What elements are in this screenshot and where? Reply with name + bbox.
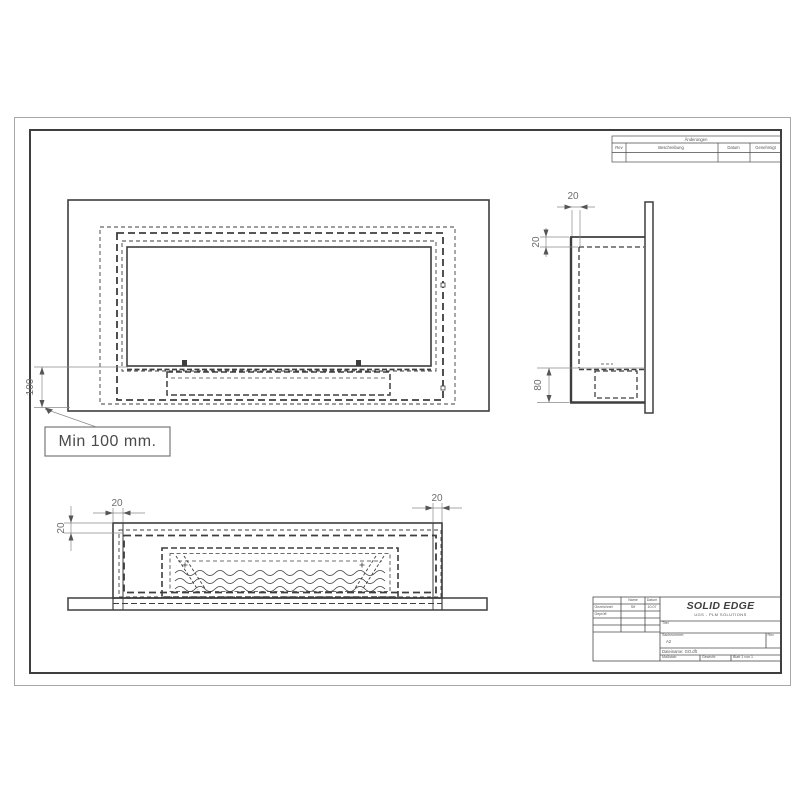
side-view-dim-left-20: 20: [532, 236, 542, 247]
titleblock-name-header: Name: [628, 599, 638, 603]
solid-edge-logo-subtitle: UGS - PLM SOLUTIONS: [694, 613, 746, 617]
solid-edge-logo: SOLID EDGE: [687, 601, 755, 612]
front-view-dimension-lines: [34, 367, 128, 429]
titleblock-filename: Dateiname: GO.dft: [662, 649, 697, 653]
bottom-view-dim-right-20: 20: [431, 494, 442, 504]
side-view-dim-80: 80: [534, 379, 544, 390]
bottom-view-dim-side-20: 20: [57, 522, 67, 533]
min-clearance-callout-text: Min 100 mm.: [59, 434, 157, 450]
revision-col-date: Datum: [727, 146, 739, 150]
side-view-dim-top-20: 20: [567, 192, 578, 202]
bottom-view-dim-left-20: 20: [111, 499, 122, 509]
revision-table-title: Änderungen: [685, 137, 708, 141]
revision-col-rev: Rev: [615, 146, 622, 150]
titleblock-sheet-size: A2: [666, 640, 671, 644]
titleblock-rev-label: Rev: [768, 634, 774, 638]
bottom-view: [64, 503, 487, 610]
cad-drawing-sheet: Änderungen Rev Beschreibung Datum Genehm…: [0, 0, 800, 800]
side-view: [537, 202, 653, 413]
front-view-dim-100: 100: [26, 379, 36, 396]
front-view: [34, 200, 489, 456]
titleblock-docnumber-label: Sachnummer:: [662, 634, 684, 638]
titleblock-drawn-name: Stf: [631, 606, 635, 610]
titleblock-title-label: Titel: [662, 622, 669, 626]
titleblock-checked-label: Geprüft: [595, 613, 607, 617]
revision-col-description: Beschreibung: [658, 146, 684, 150]
front-view-clips: [182, 360, 361, 366]
titleblock-scale-label: Maßstab:: [662, 656, 677, 660]
titleblock-drawn-label: Gezeichnet: [595, 606, 613, 610]
revision-col-approved: Genehmigt: [755, 146, 775, 150]
drawing-linework: [0, 0, 800, 800]
titleblock-weight-label: Gewicht:: [702, 656, 716, 660]
titleblock-date-header: Datum: [647, 599, 658, 603]
titleblock-sheet-label: Blatt 1 von 1: [733, 656, 753, 660]
sheet-border: [15, 118, 791, 686]
titleblock-drawn-date: 10.07: [648, 606, 657, 610]
